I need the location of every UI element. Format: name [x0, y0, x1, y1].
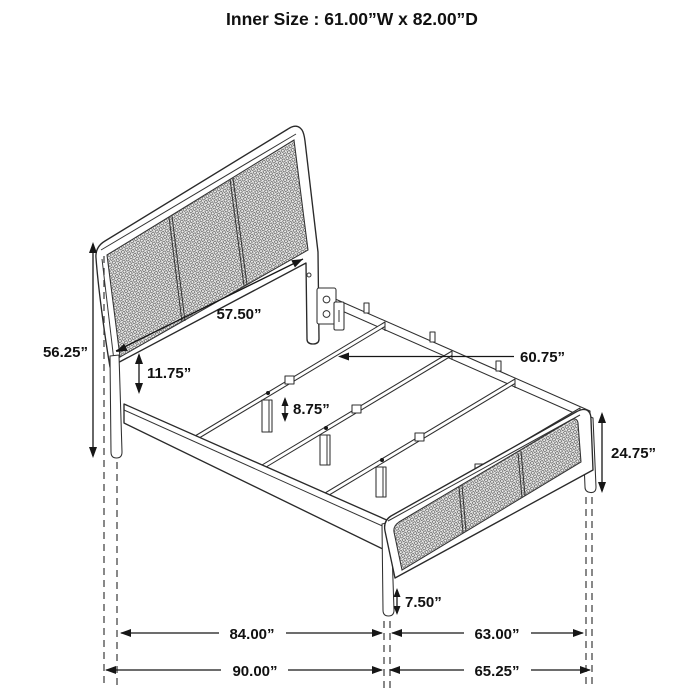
dim-label-footboard-leg-height: 7.50”	[405, 594, 442, 611]
slat-joint	[415, 433, 424, 441]
dim-label-overall-length: 90.00”	[232, 663, 277, 680]
rail-bracket-tab	[496, 361, 501, 371]
slat-center-leg	[376, 467, 386, 497]
page-title: Inner Size : 61.00”W x 82.00”D	[226, 9, 478, 29]
dim-label-headboard-width: 57.50”	[216, 306, 261, 323]
slat-screw-dot	[324, 426, 328, 430]
rail-bracket-tab	[430, 332, 435, 342]
dim-label-headboard-panel-gap: 11.75”	[147, 365, 191, 382]
dim-label-footboard-inner-width: 63.00”	[474, 626, 519, 643]
slat-center-leg	[262, 400, 272, 432]
slat-center-leg	[320, 435, 330, 465]
rail-bracket-tab	[364, 303, 369, 313]
dim-label-footboard-overall-width: 65.25”	[474, 663, 519, 680]
bed-dimension-diagram-page: Inner Size : 61.00”W x 82.00”D	[0, 0, 700, 700]
dim-label-slat-leg-height: 8.75”	[293, 401, 330, 418]
slat-screw-dot	[380, 458, 384, 462]
dim-label-inner-length: 84.00”	[229, 626, 274, 643]
headboard-bracket	[317, 288, 336, 324]
bed-dimension-diagram: Inner Size : 61.00”W x 82.00”D	[0, 0, 700, 700]
background	[0, 0, 700, 700]
slat-screw-dot	[266, 391, 270, 395]
slat-joint	[352, 405, 361, 413]
dim-label-slat-length: 60.75”	[520, 349, 565, 366]
dim-label-overall-height: 56.25”	[43, 344, 88, 361]
slat-joint	[285, 376, 294, 384]
dim-label-footboard-height: 24.75”	[611, 445, 656, 462]
